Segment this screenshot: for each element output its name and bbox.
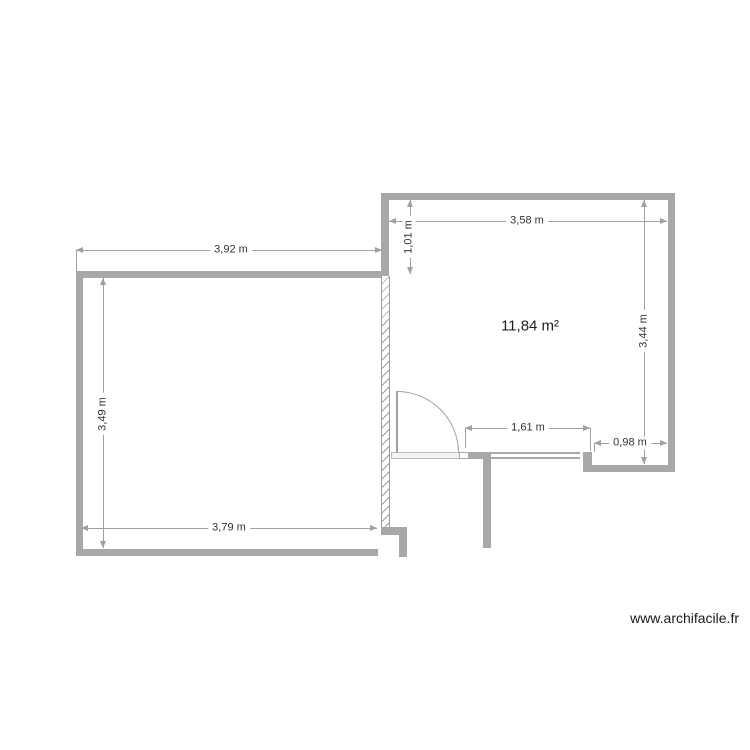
dim-label[interactable]: 3,92 m <box>210 244 252 257</box>
dim-arrow <box>100 541 106 548</box>
divider-step-wall-horizontal[interactable] <box>381 527 407 535</box>
floorplan-canvas: 3,92 m 3,49 m 3,79 m 3,58 m 1,01 m 3,44 … <box>0 0 750 750</box>
dim-arrow <box>641 200 647 207</box>
dim-arrow <box>100 278 106 285</box>
dim-arrow <box>389 218 396 224</box>
right-room-wall-bottom-segment[interactable] <box>468 452 491 459</box>
right-room-wall-bottom-recessed[interactable] <box>592 465 675 472</box>
dim-arrow <box>375 247 382 253</box>
window-symbol[interactable] <box>491 452 580 459</box>
left-room-wall-top[interactable] <box>76 271 382 278</box>
watermark-link[interactable]: www.archifacile.fr <box>630 610 739 626</box>
dim-arrow <box>465 425 472 431</box>
room-area-label: 11,84 m² <box>501 318 559 335</box>
dim-label[interactable]: 3,49 m <box>97 393 110 435</box>
dim-extension-line <box>76 250 77 271</box>
dim-arrow <box>583 425 590 431</box>
dim-label[interactable]: 1,61 m <box>507 422 549 435</box>
dim-arrow <box>407 267 413 274</box>
left-room-wall-left[interactable] <box>76 271 83 556</box>
interior-wall-stub[interactable] <box>483 459 491 548</box>
dim-label[interactable]: 1,01 m <box>403 216 416 258</box>
dim-arrow <box>370 525 377 531</box>
dim-extension-line <box>590 428 591 451</box>
divider-step-wall-vertical[interactable] <box>399 535 407 557</box>
right-room-wall-right[interactable] <box>668 193 675 472</box>
dim-label[interactable]: 3,58 m <box>506 215 548 228</box>
dim-arrow <box>660 440 667 446</box>
dim-label[interactable]: 3,44 m <box>638 310 651 352</box>
dim-label[interactable]: 0,98 m <box>609 437 651 450</box>
dim-arrow <box>660 218 667 224</box>
door-swing-arc <box>397 391 459 453</box>
right-room-wall-top[interactable] <box>381 193 675 200</box>
right-room-wall-left-upper[interactable] <box>381 193 389 276</box>
left-room-wall-bottom[interactable] <box>76 549 378 556</box>
door-threshold <box>391 452 460 459</box>
dim-label[interactable]: 3,79 m <box>208 522 250 535</box>
door-jamb-block <box>459 452 469 459</box>
dim-arrow <box>594 440 601 446</box>
right-room-step-wall[interactable] <box>583 452 592 472</box>
dim-extension-line <box>465 428 466 448</box>
dim-arrow <box>641 457 647 464</box>
divider-wall-hatched[interactable] <box>381 276 390 528</box>
dim-arrow <box>81 525 88 531</box>
dim-arrow <box>76 247 83 253</box>
dim-arrow <box>407 200 413 207</box>
